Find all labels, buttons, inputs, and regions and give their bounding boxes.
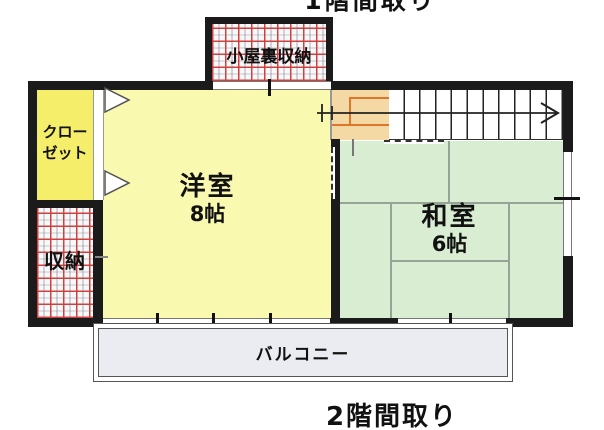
closet-label-line2: ゼット (36, 143, 94, 164)
window-japanese-east (563, 152, 572, 256)
window-tick (268, 79, 271, 96)
caption-bottom: 2階間取り (322, 396, 462, 430)
divider-door-dashes (331, 147, 335, 199)
stair-landing-line (349, 97, 389, 99)
wall-storage-top (28, 200, 103, 208)
storage-label: 収納 (32, 245, 98, 274)
japanese-room-label: 和室 6帖 (372, 202, 527, 256)
tatami-line (448, 141, 450, 202)
closet-label: クロー ゼット (36, 122, 94, 164)
floor-plan-2f: 1階間取り 小屋裏収納 (0, 0, 604, 430)
caption-top-cropped: 1階間取り (283, 0, 458, 13)
western-room-size: 8帖 (130, 202, 285, 226)
wall-bottom-left (28, 318, 103, 327)
window-tick (554, 197, 580, 200)
tatami-line (390, 260, 508, 262)
closet-door-track (93, 90, 104, 200)
western-room-name: 洋室 (130, 172, 285, 202)
balcony-label: バルコニー (94, 340, 512, 365)
wall-right-lower (563, 256, 573, 327)
closet-label-line1: クロー (36, 122, 94, 143)
japanese-room-name: 和室 (372, 202, 527, 232)
door-triangle-icon (105, 171, 129, 195)
western-room-label: 洋室 8帖 (130, 172, 285, 226)
stair-direction-arrow (314, 100, 566, 126)
balcony: バルコニー (93, 323, 513, 382)
stair-wall-stub (352, 139, 354, 156)
japanese-room-size: 6帖 (372, 232, 527, 256)
door-triangle-icon (105, 88, 129, 112)
stair-dashed-edge (384, 140, 444, 144)
window-under-attic (213, 81, 331, 90)
attic-storage-label: 小屋裏収納 (209, 42, 329, 67)
closet-door-triangles (104, 86, 132, 198)
caption-top-text: 1階間取り (283, 0, 458, 13)
